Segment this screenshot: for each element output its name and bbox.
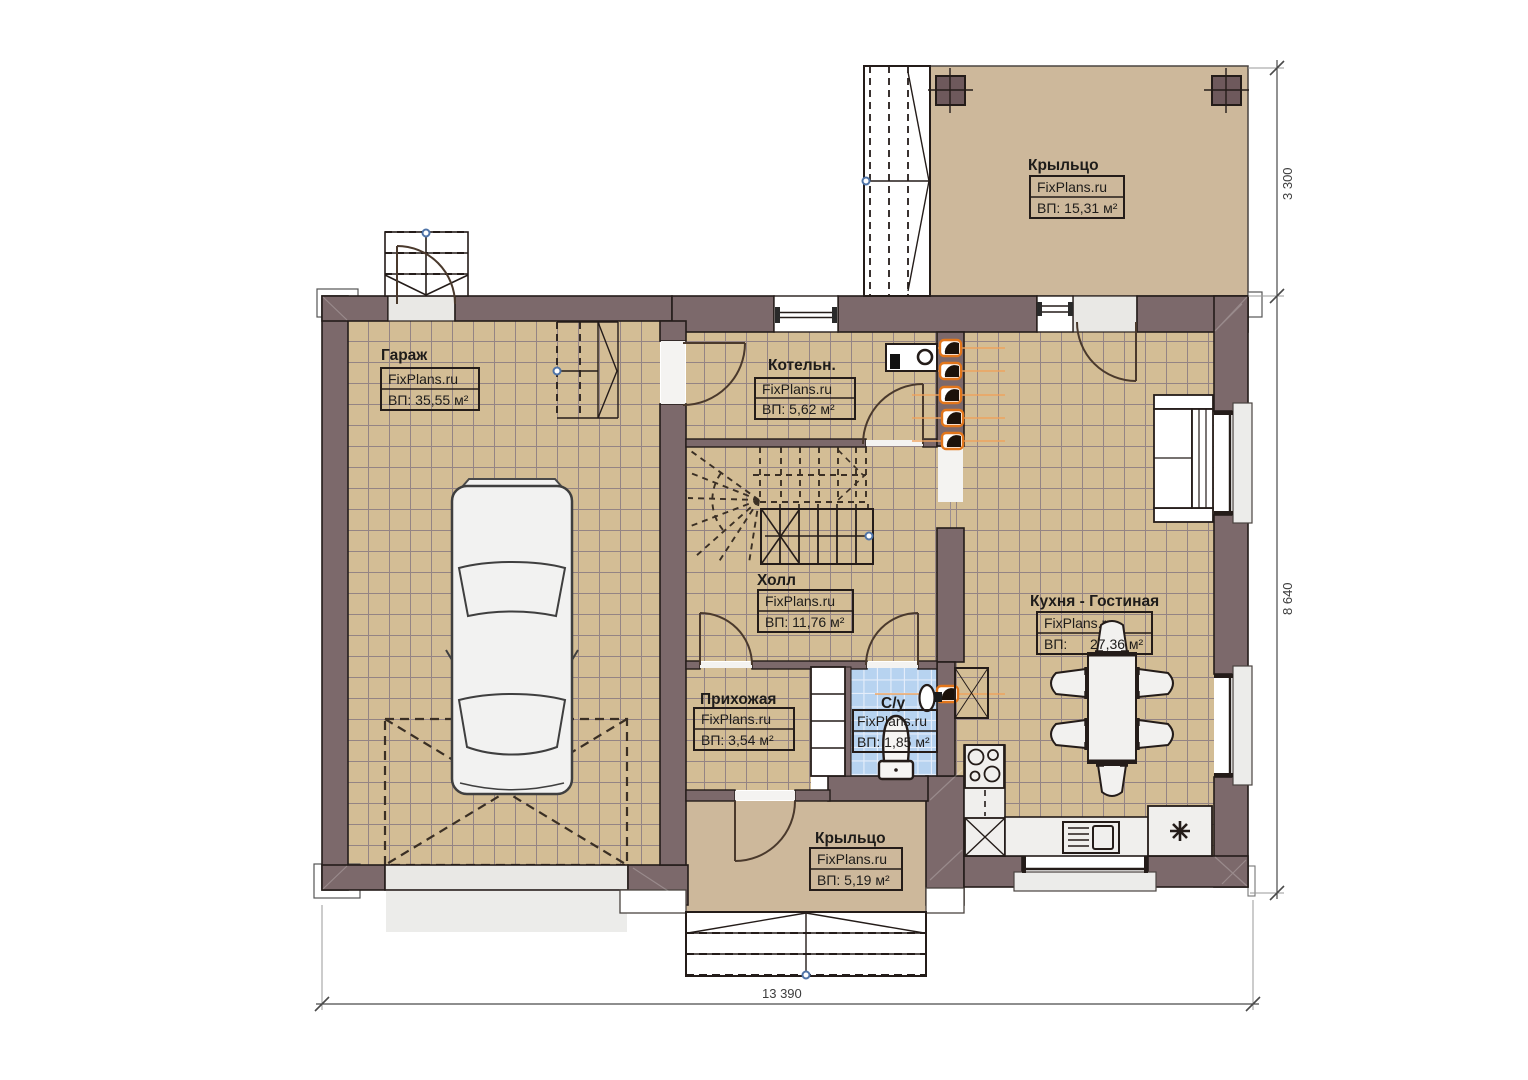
- svg-text:ВП:: ВП:: [1044, 636, 1067, 652]
- svg-text:Котельн.: Котельн.: [768, 357, 836, 374]
- svg-text:FixPlans.ru: FixPlans.ru: [857, 713, 927, 729]
- svg-text:ВП: 15,31 м²: ВП: 15,31 м²: [1037, 200, 1118, 216]
- svg-text:ВП: 5,62 м²: ВП: 5,62 м²: [762, 401, 835, 417]
- svg-text:Кухня - Гостиная: Кухня - Гостиная: [1030, 593, 1159, 610]
- svg-text:FixPlans.ru: FixPlans.ru: [1037, 179, 1107, 195]
- svg-text:Гараж: Гараж: [381, 347, 428, 364]
- svg-text:27,36 м²: 27,36 м²: [1090, 636, 1144, 652]
- svg-text:FixPlans.ru: FixPlans.ru: [762, 381, 832, 397]
- svg-text:Холл: Холл: [757, 572, 796, 589]
- svg-text:FixPlans.ru: FixPlans.ru: [701, 711, 771, 727]
- svg-text:ВП: 5,19 м²: ВП: 5,19 м²: [817, 872, 890, 888]
- svg-text:Крыльцо: Крыльцо: [815, 830, 886, 847]
- svg-text:8 640: 8 640: [1280, 582, 1295, 615]
- svg-text:13 390: 13 390: [762, 986, 802, 1001]
- svg-text:ВП: 11,76 м²: ВП: 11,76 м²: [765, 614, 845, 630]
- svg-text:ВП: 35,55 м²: ВП: 35,55 м²: [388, 392, 469, 408]
- svg-text:FixPlans.ru: FixPlans.ru: [765, 593, 835, 609]
- svg-text:ВП: 3,54 м²: ВП: 3,54 м²: [701, 732, 774, 748]
- svg-text:FixPlans.ru: FixPlans.ru: [817, 851, 887, 867]
- svg-text:FixPlans.ru: FixPlans.ru: [388, 371, 458, 387]
- svg-text:3 300: 3 300: [1280, 167, 1295, 200]
- svg-text:Крыльцо: Крыльцо: [1028, 157, 1099, 174]
- svg-text:Прихожая: Прихожая: [700, 691, 776, 708]
- svg-text:ВП: 1,85 м²: ВП: 1,85 м²: [857, 734, 930, 750]
